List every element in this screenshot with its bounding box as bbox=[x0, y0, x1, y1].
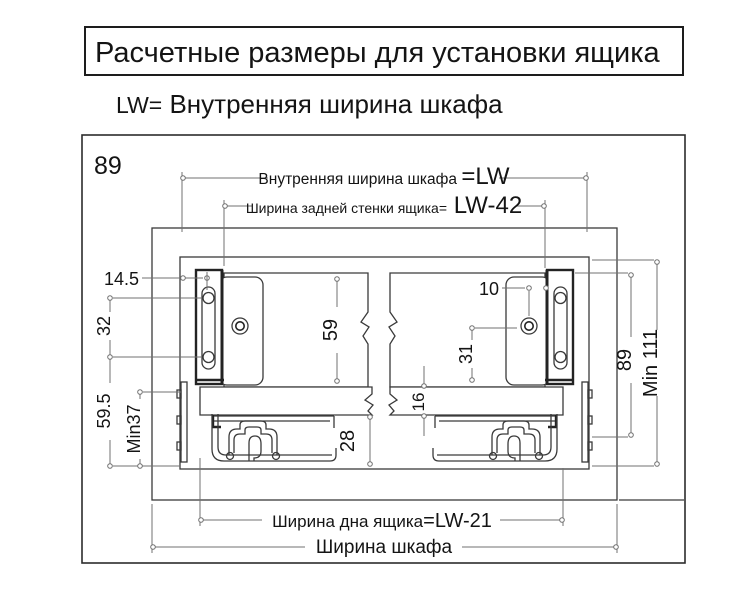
subtitle: LW= Внутренняя ширина шкафа bbox=[116, 89, 503, 119]
dim-label-back-wall-width: Ширина задней стенки ящика= LW-42 bbox=[246, 192, 522, 219]
dim-label-side-height: 89 bbox=[614, 349, 636, 371]
dim-label-hole-spacing: 32 bbox=[94, 316, 114, 336]
dim-label-bottom-thickness: 16 bbox=[409, 393, 428, 412]
dim-label-hole-height: 31 bbox=[456, 344, 476, 364]
dim-front-offset: 14.5 bbox=[104, 269, 209, 290]
drawer-bottom-panel bbox=[200, 387, 563, 415]
dim-label-min-rail-clearance: Min37 bbox=[124, 404, 144, 453]
technical-drawing: Расчетные размеры для установки ящика LW… bbox=[0, 0, 750, 600]
dim-label-cabinet-width: Ширина шкафа bbox=[316, 537, 453, 558]
dim-side-height: 89 bbox=[575, 273, 636, 438]
dim-under-bottom-gap: 28 bbox=[337, 415, 372, 467]
dim-label-inner-width: Внутренняя ширина шкафа =LW bbox=[258, 163, 510, 190]
dim-label-hole-side-offset: 10 bbox=[479, 279, 499, 299]
drawing-page: Расчетные размеры для установки ящика LW… bbox=[0, 0, 750, 600]
clamp-plate bbox=[219, 277, 263, 385]
dim-label-back-panel-height: 59 bbox=[320, 319, 342, 341]
dim-label-min-inner-height: Min 111 bbox=[640, 329, 662, 397]
page-title: Расчетные размеры для установки ящика bbox=[95, 37, 661, 69]
rail-wall-strip bbox=[177, 382, 187, 462]
dim-label-front-offset: 14.5 bbox=[104, 269, 139, 289]
corner-label: 89 bbox=[94, 152, 122, 180]
dim-label-bottom-width: Ширина дна ящика=LW-21 bbox=[272, 510, 492, 532]
dim-label-under-bottom-gap: 28 bbox=[337, 430, 359, 452]
dim-label-bottom-offset: 59.5 bbox=[94, 393, 114, 428]
dim-hole-spacing: 32 bbox=[94, 296, 202, 360]
dim-inner-width: Внутренняя ширина шкафа =LW bbox=[181, 163, 589, 232]
